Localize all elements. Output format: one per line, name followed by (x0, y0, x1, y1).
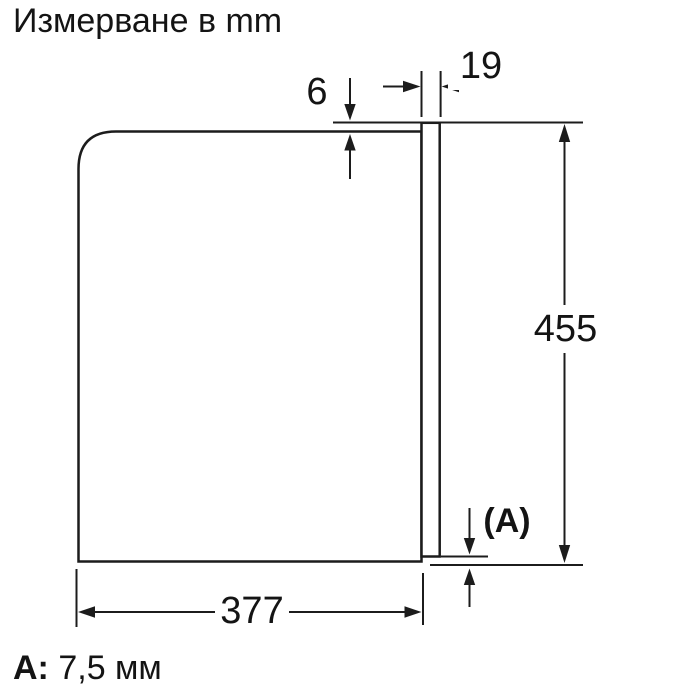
dim-6-arrow-up-icon (344, 134, 355, 179)
dim-6-arrow-down-icon (344, 78, 355, 121)
diagram-title: Измерване в mm (13, 1, 282, 42)
dim-455-label: 455 (527, 307, 604, 353)
dim-377-label: 377 (215, 589, 289, 635)
dim-6-label: 6 (296, 70, 338, 116)
dim-A-arrow-up-icon (464, 569, 475, 608)
door-panel (422, 123, 440, 557)
legend-value: 7,5 мм (58, 649, 161, 687)
dim-19-extension-lines (422, 71, 441, 117)
appliance-body-outline (79, 132, 422, 562)
dim-19-label: 19 (448, 44, 514, 90)
dim-A-label: (A) (468, 501, 546, 542)
legend-key: A: (13, 649, 49, 687)
dimension-drawing-page: Измерване в mm 6 19 455 377 (A) A: 7,5 м… (0, 0, 700, 700)
dim-19-arrow-right-icon (383, 81, 421, 93)
legend-note: A: 7,5 мм (13, 648, 162, 689)
